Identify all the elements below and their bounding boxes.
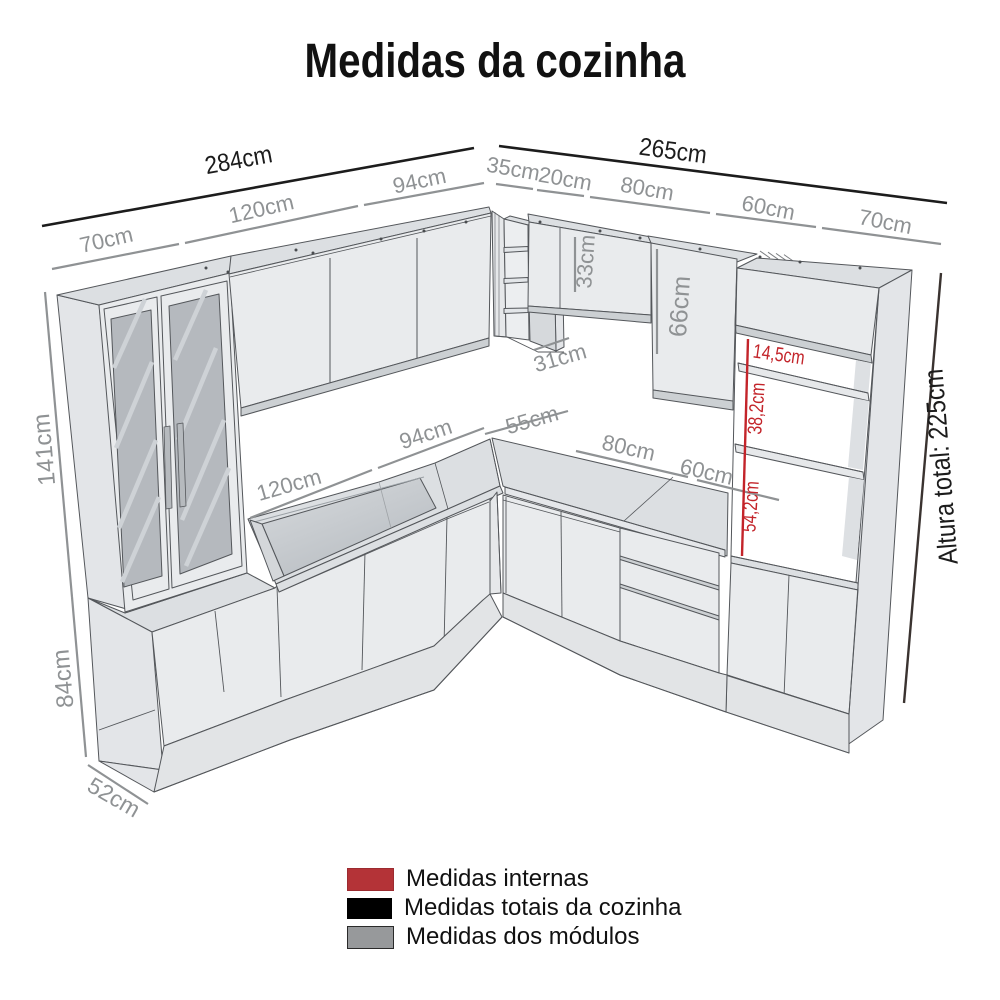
svg-text:84cm: 84cm <box>48 648 80 709</box>
svg-text:80cm: 80cm <box>600 429 658 465</box>
svg-text:66cm: 66cm <box>664 275 696 338</box>
svg-text:38,2cm: 38,2cm <box>744 382 770 435</box>
svg-text:55cm: 55cm <box>503 400 562 439</box>
svg-text:60cm: 60cm <box>740 190 798 225</box>
svg-text:284cm: 284cm <box>203 140 275 180</box>
svg-text:70cm: 70cm <box>77 221 135 257</box>
svg-text:Altura total: 225cm: Altura total: 225cm <box>918 368 963 566</box>
svg-text:120cm: 120cm <box>254 464 324 506</box>
svg-text:80cm: 80cm <box>619 172 676 206</box>
svg-text:54,2cm: 54,2cm <box>738 480 764 532</box>
svg-text:94cm: 94cm <box>391 163 449 199</box>
svg-text:35cm: 35cm <box>485 152 542 186</box>
svg-text:94cm: 94cm <box>396 414 455 454</box>
svg-text:33cm: 33cm <box>571 234 600 289</box>
